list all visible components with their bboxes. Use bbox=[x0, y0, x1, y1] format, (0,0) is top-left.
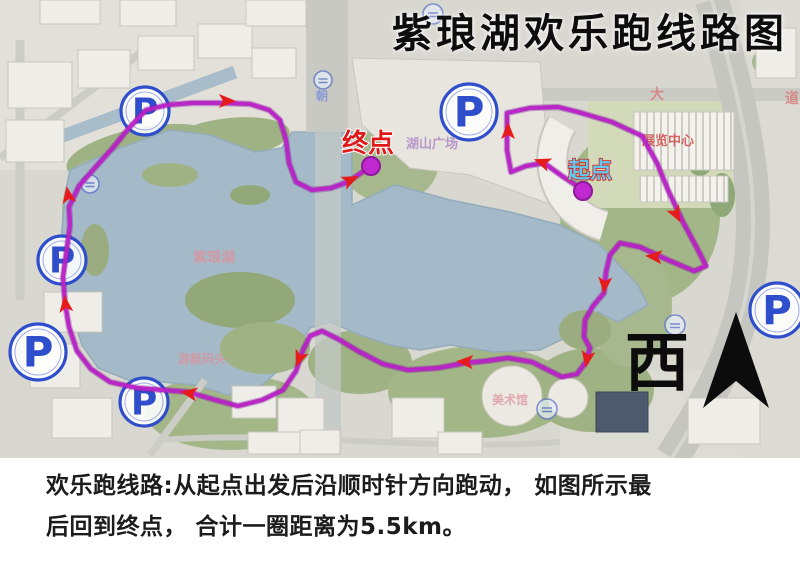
screenshot-root: PPPPPP 展览中心湖山广场紫琅湖游艇码头美术馆大道朝 终点 起点 西 bbox=[0, 0, 800, 587]
start-point-dot bbox=[574, 182, 592, 200]
page-title: 紫琅湖欢乐跑线路图 bbox=[358, 13, 788, 55]
small-map-icon bbox=[314, 71, 332, 89]
route-description-line1: 欢乐跑线路:从起点出发后沿顺时针方向跑动， 如图所示最 bbox=[46, 466, 762, 507]
parking-glyph: P bbox=[762, 286, 792, 334]
parking-icon: P bbox=[441, 84, 497, 140]
parking-glyph: P bbox=[454, 88, 485, 137]
map-label: 紫琅湖 bbox=[193, 249, 235, 266]
map-label: 朝 bbox=[316, 88, 328, 103]
map-label: 美术馆 bbox=[492, 392, 528, 407]
compass-west-label: 西 bbox=[625, 327, 689, 401]
map-label: 游艇码头 bbox=[178, 351, 226, 366]
parking-glyph: P bbox=[23, 328, 54, 377]
route-description: 欢乐跑线路:从起点出发后沿顺时针方向跑动， 如图所示最 后回到终点， 合计一圈距… bbox=[46, 466, 762, 548]
end-point-label: 终点 bbox=[342, 128, 394, 159]
exhibition-hall-2 bbox=[640, 176, 728, 202]
start-point-label: 起点 bbox=[567, 158, 612, 184]
end-point-dot bbox=[362, 157, 380, 175]
route-map: PPPPPP 展览中心湖山广场紫琅湖游艇码头美术馆大道朝 终点 起点 西 bbox=[0, 0, 800, 458]
small-map-icon bbox=[537, 399, 557, 419]
map-label: 道 bbox=[785, 90, 799, 107]
parking-icon: P bbox=[10, 324, 66, 380]
map-canvas: PPPPPP 展览中心湖山广场紫琅湖游艇码头美术馆大道朝 终点 起点 西 bbox=[0, 0, 800, 458]
map-label: 湖山广场 bbox=[406, 136, 458, 152]
route-description-line2: 后回到终点， 合计一圈距离为5.5km。 bbox=[46, 507, 762, 548]
map-label: 大 bbox=[650, 86, 664, 103]
parking-icon: P bbox=[750, 283, 800, 337]
